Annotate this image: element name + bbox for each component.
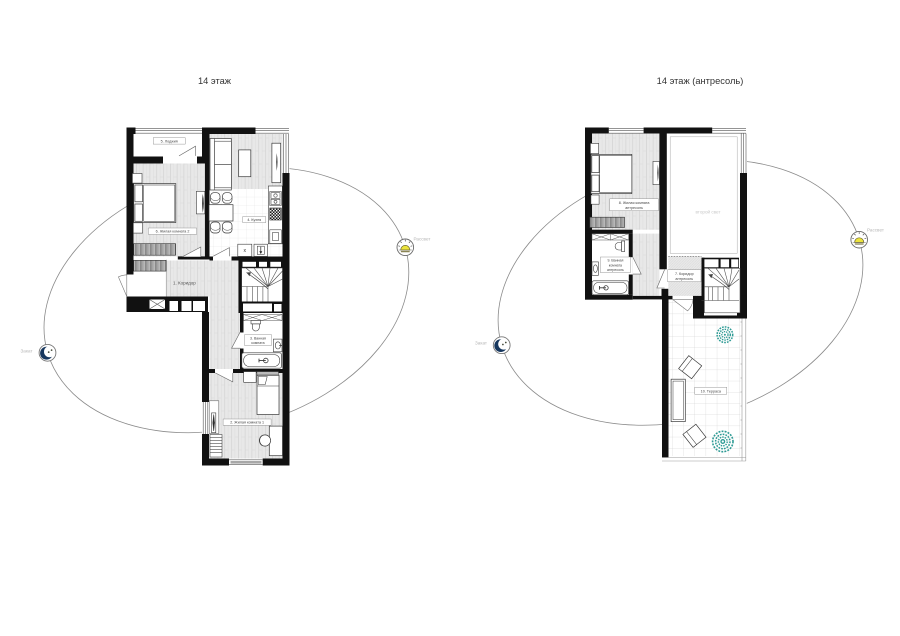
svg-text:2. Жилая комната 1: 2. Жилая комната 1: [230, 421, 264, 425]
svg-text:Закат: Закат: [21, 349, 34, 354]
svg-text:5. Лоджия: 5. Лоджия: [161, 139, 178, 143]
svg-text:второй свет: второй свет: [695, 209, 721, 215]
svg-text:антресоль: антресоль: [607, 268, 624, 272]
svg-text:4. Кухня: 4. Кухня: [247, 218, 261, 222]
svg-text:антресоль: антресоль: [625, 206, 643, 210]
svg-text:1. Коридор: 1. Коридор: [173, 281, 196, 286]
svg-text:9. Ванная: 9. Ванная: [607, 259, 623, 263]
svg-text:14 этаж (антресоль): 14 этаж (антресоль): [657, 76, 744, 86]
svg-text:6. Жилая комната 2: 6. Жилая комната 2: [156, 230, 190, 234]
svg-text:Рассвет: Рассвет: [867, 228, 885, 233]
svg-text:8. Жилая комната: 8. Жилая комната: [619, 201, 651, 205]
svg-text:антресоль: антресоль: [675, 277, 693, 281]
svg-text:Рассвет: Рассвет: [414, 237, 432, 242]
svg-text:7. Коридор: 7. Коридор: [675, 272, 694, 276]
svg-text:10. Терраса: 10. Терраса: [701, 389, 722, 393]
svg-text:14 этаж: 14 этаж: [198, 76, 232, 86]
svg-text:комната: комната: [609, 263, 622, 267]
svg-text:комната: комната: [251, 341, 264, 345]
svg-text:3. Ванная: 3. Ванная: [250, 336, 266, 340]
svg-text:Закат: Закат: [475, 341, 488, 346]
